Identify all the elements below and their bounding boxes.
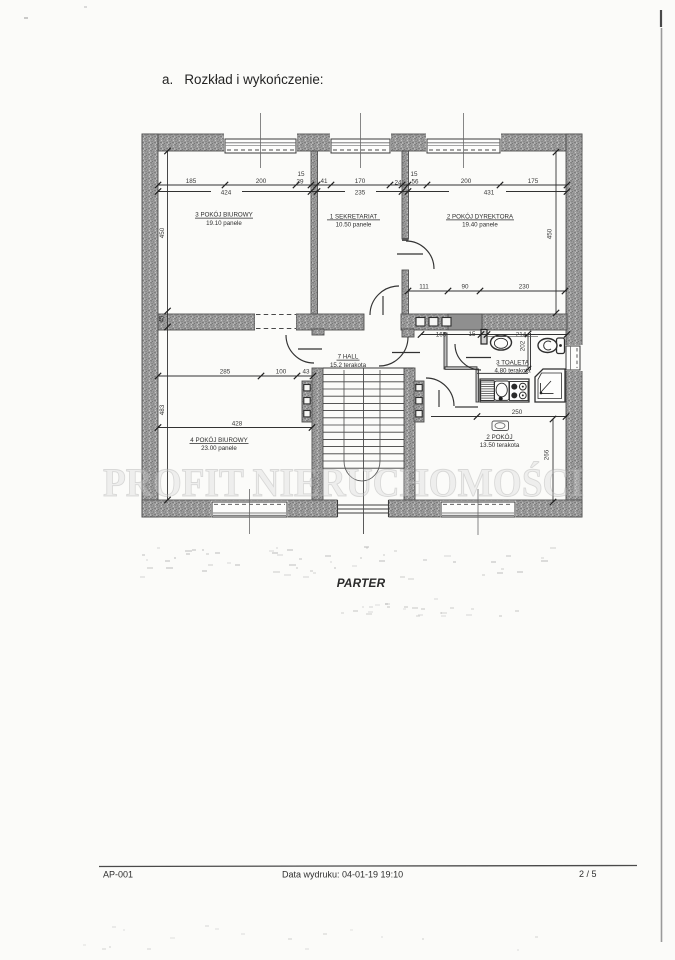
svg-text:235: 235: [355, 189, 366, 196]
svg-text:2 POKÓJ: 2 POKÓJ: [486, 434, 512, 441]
svg-text:43: 43: [302, 369, 310, 376]
svg-text:15.2 terakota: 15.2 terakota: [330, 362, 367, 369]
svg-text:3 POKÓJ BIUROWY: 3 POKÓJ BIUROWY: [195, 212, 252, 219]
svg-text:185: 185: [186, 178, 197, 185]
svg-text:214: 214: [516, 332, 527, 339]
svg-text:a. Rozkład i wykończenie:: a. Rozkład i wykończenie:: [162, 72, 324, 87]
svg-text:10.50 panele: 10.50 panele: [336, 222, 372, 229]
svg-text:7 HALL: 7 HALL: [338, 354, 359, 361]
svg-text:428: 428: [232, 420, 243, 427]
svg-text:15: 15: [468, 331, 476, 338]
svg-text:111: 111: [419, 284, 429, 291]
svg-text:13.50 terakota: 13.50 terakota: [480, 442, 520, 449]
svg-text:431: 431: [484, 189, 495, 196]
svg-text:41: 41: [320, 178, 328, 185]
svg-text:170: 170: [355, 178, 366, 185]
svg-text:3 TOALETA: 3 TOALETA: [496, 359, 530, 366]
svg-text:24: 24: [394, 180, 402, 187]
svg-text:1 SEKRETARIAT: 1 SEKRETARIAT: [330, 213, 377, 220]
svg-text:19.10 panele: 19.10 panele: [206, 220, 242, 227]
svg-text:200: 200: [256, 178, 267, 185]
svg-text:450: 450: [159, 227, 166, 238]
svg-text:230: 230: [519, 284, 530, 291]
svg-text:AP-001: AP-001: [103, 870, 133, 880]
svg-text:Data wydruku: 04-01-19 19:10: Data wydruku: 04-01-19 19:10: [282, 870, 403, 880]
svg-text:483: 483: [159, 404, 166, 415]
svg-text:PARTER: PARTER: [337, 576, 386, 590]
svg-text:266: 266: [544, 449, 551, 460]
svg-text:45: 45: [159, 315, 166, 323]
svg-text:56: 56: [411, 179, 419, 186]
svg-text:23.00 panele: 23.00 panele: [201, 445, 237, 452]
svg-text:15: 15: [297, 171, 305, 178]
svg-text:175: 175: [528, 178, 539, 185]
svg-text:285: 285: [220, 369, 231, 376]
svg-text:202: 202: [520, 340, 527, 351]
svg-text:250: 250: [512, 409, 523, 416]
svg-text:424: 424: [221, 189, 232, 196]
svg-text:4.80 terakota: 4.80 terakota: [494, 368, 531, 375]
svg-text:19.40 panele: 19.40 panele: [462, 222, 498, 229]
svg-text:100: 100: [276, 369, 287, 376]
svg-text:200: 200: [461, 178, 472, 185]
svg-text:90: 90: [461, 284, 469, 291]
svg-text:4 POKÓJ BIUROWY: 4 POKÓJ BIUROWY: [190, 437, 247, 444]
svg-text:2 / 5: 2 / 5: [579, 869, 597, 879]
svg-text:15: 15: [410, 171, 418, 178]
svg-text:2 POKÓJ DYREKTORA: 2 POKÓJ DYREKTORA: [447, 213, 514, 220]
svg-text:450: 450: [547, 228, 554, 239]
svg-text:165: 165: [436, 332, 447, 339]
svg-text:39: 39: [296, 179, 304, 186]
svg-text:PROFIT NIERUCHOMOŚCI: PROFIT NIERUCHOMOŚCI: [103, 460, 584, 505]
